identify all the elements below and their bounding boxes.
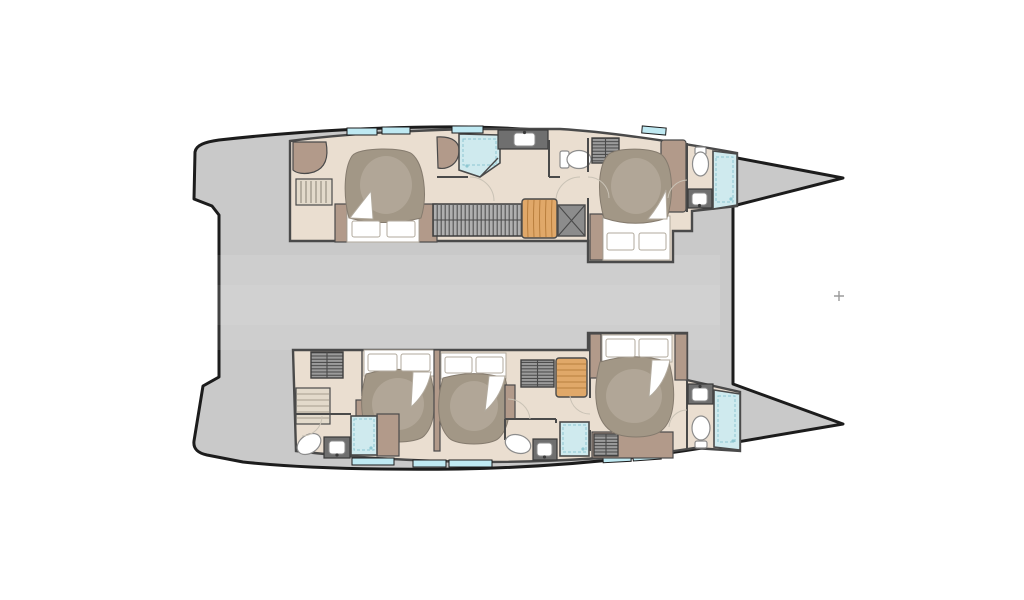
double-bed bbox=[599, 149, 671, 260]
toilet bbox=[693, 147, 709, 176]
hull-window bbox=[413, 460, 446, 467]
shower bbox=[560, 422, 589, 456]
pillow bbox=[639, 233, 666, 250]
washbasin-counter bbox=[688, 384, 713, 404]
cabinet-column bbox=[675, 334, 687, 380]
washbasin bbox=[537, 443, 552, 456]
bathroom-cabinet bbox=[377, 414, 399, 456]
double-bed bbox=[345, 149, 424, 242]
skylight bbox=[642, 126, 667, 135]
washbasin-counter bbox=[688, 189, 712, 208]
wardrobe-shelves bbox=[296, 179, 332, 205]
louvered-wardrobe bbox=[521, 360, 554, 387]
pillow bbox=[368, 354, 397, 371]
hull-window bbox=[352, 458, 394, 465]
skylight bbox=[452, 126, 483, 133]
louvered-wardrobe bbox=[311, 352, 343, 378]
washbasin-counter bbox=[324, 437, 350, 458]
pillow bbox=[445, 357, 472, 373]
access-steps bbox=[296, 388, 330, 424]
bed-side-cabinet bbox=[335, 204, 347, 242]
skylight bbox=[382, 127, 410, 134]
catamaran-floorplan bbox=[0, 0, 1024, 600]
lower-hull bbox=[293, 333, 740, 467]
double-bed bbox=[439, 353, 510, 444]
washbasin-counter bbox=[498, 130, 548, 149]
washbasin bbox=[329, 441, 345, 454]
slatted-bench bbox=[433, 204, 522, 236]
technical-locker bbox=[558, 205, 585, 236]
shower bbox=[714, 390, 740, 450]
pillow bbox=[607, 233, 634, 250]
pillow bbox=[352, 221, 380, 237]
pillow bbox=[476, 357, 503, 373]
center-deck-mark bbox=[834, 291, 844, 301]
toilet bbox=[560, 151, 591, 169]
bed-side-cabinet bbox=[505, 385, 515, 419]
floorplan-canvas bbox=[0, 0, 1024, 600]
pillow bbox=[387, 221, 415, 237]
washbasin bbox=[692, 388, 708, 401]
shower bbox=[713, 151, 737, 209]
shower bbox=[351, 416, 377, 455]
bed-side-cabinet bbox=[590, 214, 603, 260]
upper-hull bbox=[290, 126, 737, 262]
pillow bbox=[606, 339, 635, 357]
upper-companionway bbox=[433, 199, 585, 238]
washbasin bbox=[692, 193, 707, 205]
deck-sheen-2 bbox=[200, 285, 720, 325]
wood-stairs bbox=[522, 199, 557, 238]
double-bed bbox=[596, 335, 674, 437]
toilet bbox=[692, 416, 710, 448]
pillow bbox=[639, 339, 668, 357]
duvet-highlight bbox=[611, 158, 661, 214]
washbasin-counter bbox=[533, 439, 557, 460]
washbasin bbox=[514, 133, 535, 146]
hull-window bbox=[449, 460, 492, 467]
pillow bbox=[401, 354, 430, 371]
wood-stairs bbox=[556, 358, 587, 397]
vent-locker bbox=[594, 434, 618, 456]
skylight bbox=[347, 128, 377, 135]
